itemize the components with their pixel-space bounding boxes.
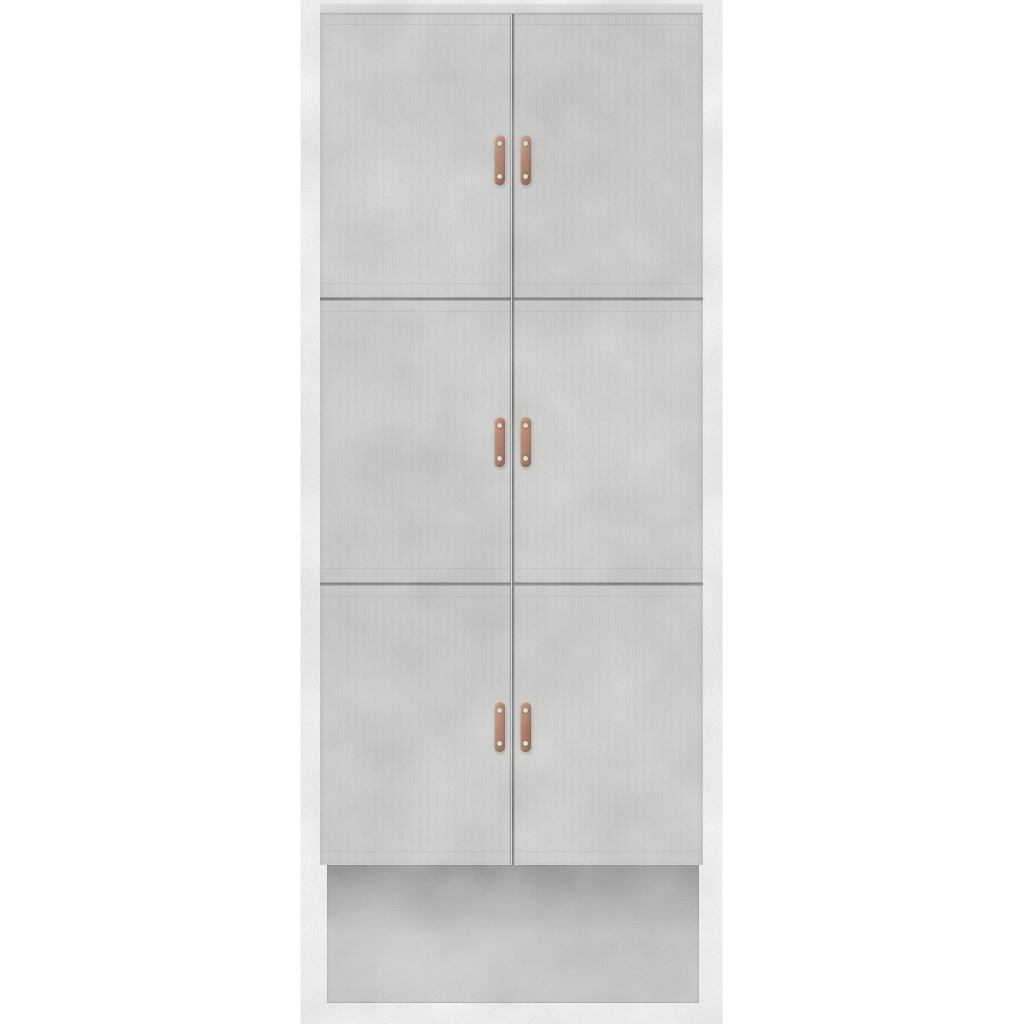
handle-screw-top — [523, 708, 528, 713]
handle-screw-top — [523, 423, 528, 428]
handle-screw-top — [497, 708, 502, 713]
handle-screw-bottom — [497, 456, 502, 461]
plinth-base — [327, 865, 699, 1003]
center-door-seam — [510, 14, 515, 865]
plinth-shadow — [327, 865, 699, 935]
door-handle-bottom-right — [520, 702, 531, 752]
product-photo — [0, 0, 1024, 1024]
door-handle-top-right — [520, 135, 531, 185]
door-handle-bottom-left — [494, 702, 505, 752]
handle-screw-top — [497, 423, 502, 428]
door-top-right — [513, 14, 703, 297]
handle-screw-bottom — [523, 456, 528, 461]
handle-screw-bottom — [523, 741, 528, 746]
door-handle-top-left — [494, 135, 505, 185]
handle-screw-top — [497, 141, 502, 146]
door-bottom-left — [320, 586, 513, 865]
door-bottom-right — [513, 586, 703, 865]
door-middle-left — [320, 301, 513, 582]
door-handle-middle-right — [520, 417, 531, 467]
door-top-left — [320, 14, 513, 297]
door-handle-middle-left — [494, 417, 505, 467]
door-middle-right — [513, 301, 703, 582]
handle-screw-bottom — [497, 741, 502, 746]
cabinet-doors-area — [320, 14, 703, 865]
cabinet-top-edge — [320, 3, 703, 14]
cabinet — [0, 0, 1024, 1024]
handle-screw-bottom — [497, 174, 502, 179]
handle-screw-bottom — [523, 174, 528, 179]
handle-screw-top — [523, 141, 528, 146]
